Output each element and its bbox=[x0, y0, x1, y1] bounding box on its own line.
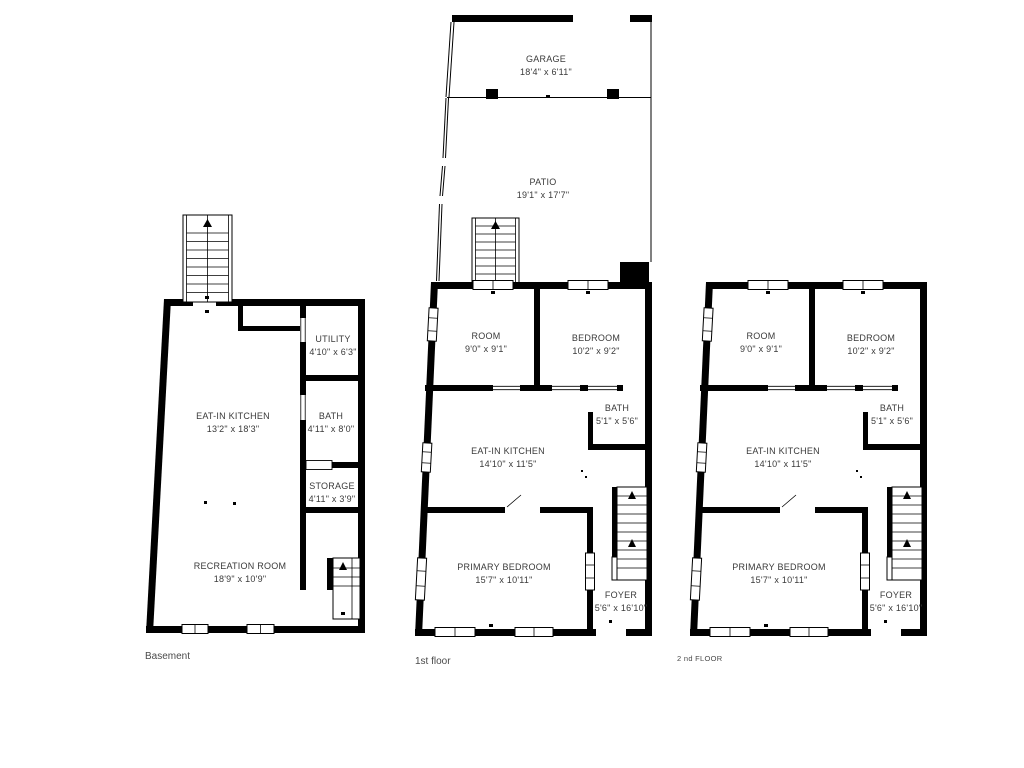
room-name: ROOM bbox=[740, 330, 782, 343]
room-dims: 5'6" x 16'10" bbox=[595, 602, 648, 615]
room-label-first-primary-bedroom: PRIMARY BEDROOM 15'7" x 10'11" bbox=[457, 561, 550, 587]
room-label-basement-bath: BATH 4'11" x 8'0" bbox=[308, 410, 355, 436]
room-label-second-primary-bedroom: PRIMARY BEDROOM 15'7" x 10'11" bbox=[732, 561, 825, 587]
room-name: BATH bbox=[308, 410, 355, 423]
caption-basement: Basement bbox=[145, 651, 190, 662]
room-dims: 10'2" x 9'2" bbox=[847, 345, 895, 358]
patio-stairs bbox=[472, 218, 519, 285]
room-label-basement-storage: STORAGE 4'11" x 3'9" bbox=[309, 480, 356, 506]
chimney-block bbox=[620, 262, 649, 285]
room-label-basement-utility: UTILITY 4'10" x 6'3" bbox=[309, 333, 356, 359]
room-label-first-foyer: FOYER 5'6" x 16'10" bbox=[595, 589, 648, 615]
room-dims: 9'0" x 9'1" bbox=[465, 343, 507, 356]
caption-second-floor: 2 nd FLOOR bbox=[677, 654, 723, 663]
room-label-second-room: ROOM 9'0" x 9'1" bbox=[740, 330, 782, 356]
room-label-second-bedroom: BEDROOM 10'2" x 9'2" bbox=[847, 332, 895, 358]
room-dims: 5'1" x 5'6" bbox=[596, 415, 638, 428]
room-dims: 13'2" x 18'3" bbox=[196, 423, 270, 436]
room-label-second-bath: BATH 5'1" x 5'6" bbox=[871, 402, 913, 428]
room-name: PRIMARY BEDROOM bbox=[457, 561, 550, 574]
room-label-basement-eat-in-kitchen: EAT-IN KITCHEN 13'2" x 18'3" bbox=[196, 410, 270, 436]
room-name: UTILITY bbox=[309, 333, 356, 346]
room-label-basement-recreation-room: RECREATION ROOM 18'9" x 10'9" bbox=[194, 560, 287, 586]
caption-first-floor: 1st floor bbox=[415, 656, 451, 667]
room-name: PATIO bbox=[517, 176, 570, 189]
room-dims: 5'6" x 16'10" bbox=[870, 602, 923, 615]
room-label-first-room: ROOM 9'0" x 9'1" bbox=[465, 330, 507, 356]
room-name: RECREATION ROOM bbox=[194, 560, 287, 573]
room-label-second-foyer: FOYER 5'6" x 16'10" bbox=[870, 589, 923, 615]
room-dims: 9'0" x 9'1" bbox=[740, 343, 782, 356]
room-dims: 18'9" x 10'9" bbox=[194, 573, 287, 586]
room-label-first-bath: BATH 5'1" x 5'6" bbox=[596, 402, 638, 428]
garage-top-wall bbox=[452, 15, 652, 22]
room-dims: 14'10" x 11'5" bbox=[746, 458, 820, 471]
room-name: ROOM bbox=[465, 330, 507, 343]
room-dims: 5'1" x 5'6" bbox=[871, 415, 913, 428]
room-dims: 18'4" x 6'11" bbox=[520, 66, 572, 79]
room-dims: 15'7" x 10'11" bbox=[457, 574, 550, 587]
room-name: BEDROOM bbox=[847, 332, 895, 345]
basement-entry-stairs bbox=[183, 215, 232, 302]
room-name: BATH bbox=[871, 402, 913, 415]
room-name: BATH bbox=[596, 402, 638, 415]
room-dims: 15'7" x 10'11" bbox=[732, 574, 825, 587]
basement-post-marks bbox=[204, 310, 236, 505]
room-dims: 19'1" x 17'7" bbox=[517, 189, 570, 202]
room-label-first-bedroom: BEDROOM 10'2" x 9'2" bbox=[572, 332, 620, 358]
room-name: PRIMARY BEDROOM bbox=[732, 561, 825, 574]
basement-corner-stairs bbox=[333, 558, 360, 619]
room-label-first-garage: GARAGE 18'4" x 6'11" bbox=[520, 53, 572, 79]
room-name: FOYER bbox=[870, 589, 923, 602]
room-label-second-eat-in-kitchen: EAT-IN KITCHEN 14'10" x 11'5" bbox=[746, 445, 820, 471]
room-dims: 4'10" x 6'3" bbox=[309, 346, 356, 359]
room-name: GARAGE bbox=[520, 53, 572, 66]
room-label-first-patio: PATIO 19'1" x 17'7" bbox=[517, 176, 570, 202]
room-dims: 4'11" x 8'0" bbox=[308, 423, 355, 436]
room-dims: 10'2" x 9'2" bbox=[572, 345, 620, 358]
room-name: EAT-IN KITCHEN bbox=[471, 445, 545, 458]
room-name: FOYER bbox=[595, 589, 648, 602]
room-label-first-eat-in-kitchen: EAT-IN KITCHEN 14'10" x 11'5" bbox=[471, 445, 545, 471]
room-dims: 14'10" x 11'5" bbox=[471, 458, 545, 471]
floor-plan-page: EAT-IN KITCHEN 13'2" x 18'3" UTILITY 4'1… bbox=[0, 0, 1024, 768]
room-name: BEDROOM bbox=[572, 332, 620, 345]
room-name: EAT-IN KITCHEN bbox=[746, 445, 820, 458]
room-name: STORAGE bbox=[309, 480, 356, 493]
room-name: EAT-IN KITCHEN bbox=[196, 410, 270, 423]
room-dims: 4'11" x 3'9" bbox=[309, 493, 356, 506]
